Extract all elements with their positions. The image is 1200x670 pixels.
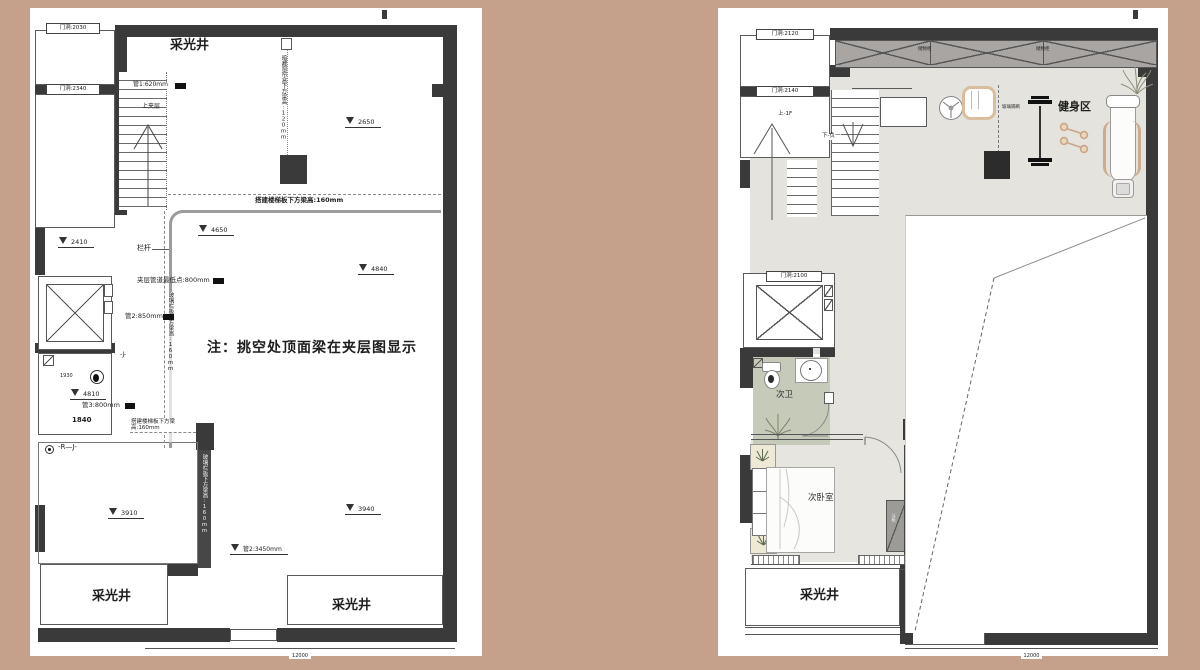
railing-label: 栏杆	[137, 245, 151, 252]
mezzanine-edge-h	[182, 210, 441, 213]
dimension-line: 12000	[145, 648, 455, 668]
toilet-detail	[768, 375, 774, 383]
bedroom-label: 次卧室	[808, 494, 834, 503]
wall	[38, 628, 230, 642]
wall	[443, 25, 457, 639]
cube-seat	[962, 86, 996, 120]
wall	[1146, 28, 1158, 645]
elevation-marker: 4840	[358, 256, 394, 275]
stair-line	[852, 88, 912, 89]
dumbbells-icon	[1058, 120, 1092, 154]
bath-door-arc	[800, 398, 830, 438]
wall	[168, 564, 198, 576]
void-edge-lines	[905, 215, 1146, 633]
pipe-mark	[175, 83, 186, 89]
nightstand-plant	[754, 447, 771, 464]
cabinet-x	[1044, 41, 1156, 65]
elevation-marker: 4650	[198, 217, 234, 236]
leader-line	[152, 249, 169, 250]
dimension-value: 12000	[289, 653, 311, 659]
cabinet-x	[836, 41, 931, 65]
curtain-line	[287, 50, 288, 155]
weight-bench	[984, 151, 1010, 179]
barbell-plate	[1028, 158, 1052, 162]
wall	[740, 348, 753, 388]
elevator-x-symbol	[46, 284, 104, 342]
side-room	[740, 35, 830, 87]
mezzanine-edge-arc	[169, 210, 183, 236]
elevator-x-symbol	[756, 285, 823, 340]
dim-label: 1840	[72, 417, 91, 424]
glass-beam-note: 玻璃栏板下方梁高:160mm	[201, 454, 207, 566]
shaft-detail	[824, 285, 833, 297]
light-well-label: 采光井	[170, 39, 209, 53]
pipe-mark	[213, 278, 224, 284]
wall	[820, 348, 835, 357]
wall-detail	[824, 392, 834, 404]
guide-dashed	[164, 211, 165, 448]
corner-plant	[1120, 64, 1154, 98]
door-tag: 门洞:2100	[766, 271, 822, 282]
corner-hatch	[43, 355, 54, 366]
shaft-detail	[824, 299, 833, 311]
wall-column	[280, 155, 307, 184]
dimension-line: 12000	[905, 648, 1158, 668]
corridor-floor	[830, 215, 905, 445]
elevation-marker: 2650	[345, 109, 381, 128]
pipe-mark	[163, 314, 174, 320]
sink-drain	[809, 368, 811, 370]
mezz-pipe-note: 夹层管道最低点:800mm	[137, 277, 210, 284]
bottom-thin-wall	[745, 627, 900, 635]
pipe-label: 管2:850mm	[125, 313, 163, 320]
door-tag: 门洞:2120	[756, 29, 814, 40]
pipe-mark	[125, 403, 135, 409]
dimension-value: 12000	[1021, 653, 1043, 659]
pipe-label: 管3:800mm	[82, 402, 120, 409]
door-tag: 门洞:2140	[756, 86, 814, 97]
symbol-label: -J-	[120, 352, 126, 358]
dresser-label: 斗柜	[890, 513, 895, 522]
wall	[985, 632, 1158, 645]
glass-partition-line	[998, 85, 999, 153]
wall	[830, 28, 1158, 40]
bath-label: 次卫	[776, 391, 793, 400]
page-background: { "canvas": {"background": "#c5a18c", "p…	[0, 0, 1200, 670]
barbell-plate	[1028, 100, 1052, 104]
stair-direction-label: 下-负一	[822, 134, 841, 140]
pipe-elevation-marker: 管2:3450mm	[230, 536, 288, 555]
side-room	[35, 30, 115, 85]
stair-direction-label: 上夹层	[142, 104, 160, 110]
light-well-label: 采光井	[332, 599, 371, 613]
stair-down-arrow	[840, 120, 866, 150]
curtain-box	[281, 38, 292, 50]
wall	[740, 160, 750, 188]
beam-dashed-line	[168, 194, 441, 195]
barbell-bar	[1039, 106, 1041, 158]
glass-partition-label: 玻璃隔断	[1002, 106, 1020, 111]
sink-basin	[800, 360, 822, 381]
staircase	[831, 90, 879, 216]
pipe-label: 管1:620mm	[133, 82, 168, 88]
bedroom-door-arc	[863, 435, 903, 475]
storage-cabinet-row	[835, 40, 1157, 68]
wall	[35, 228, 45, 275]
dim-label: 1930	[60, 374, 73, 379]
curtain-beam-note: 暗藏窗帘盒下方梁高:120mm	[280, 55, 286, 155]
wall-column	[196, 423, 214, 450]
stair-up-arrow	[750, 108, 794, 223]
mezzanine-floor-plan: 门洞:2120 门洞:2140 储物柜 储物柜 上-1F 下-负一 玻璃隔断 健…	[718, 8, 1168, 656]
elevation-marker: 3910	[108, 500, 144, 519]
elevation-marker: 2410	[58, 229, 94, 248]
light-well-label: 采光井	[800, 589, 839, 603]
wall	[115, 25, 457, 37]
north-tick	[382, 10, 387, 19]
shaft-detail	[104, 301, 113, 314]
side-room	[35, 94, 115, 228]
cabinet-label: 储物柜	[918, 48, 932, 53]
basement-floor-plan: 门洞:2030 门洞:2340 1930 -J- 管3:800mm 1840 -…	[30, 8, 482, 656]
bedroom-top-wall	[751, 434, 863, 440]
fan-icon	[938, 95, 964, 121]
beam-note: 搭建楼梯板下方梁高:160mm	[253, 197, 345, 204]
wall	[745, 348, 813, 357]
light-well-label: 采光井	[92, 590, 131, 604]
cabinet-x	[931, 41, 1044, 65]
shaft-detail	[104, 284, 113, 297]
north-tick	[1133, 10, 1138, 19]
elevation-marker: 4810	[70, 381, 106, 400]
beam-dashed-line	[130, 432, 196, 433]
stair-landing	[880, 97, 927, 127]
stair-direction-label: 上-1F	[778, 112, 792, 118]
barbell-plate	[1031, 163, 1049, 166]
treadmill	[1102, 95, 1142, 200]
wall-column	[432, 84, 443, 97]
cube-detail	[971, 91, 972, 109]
door-tag: 门洞:2030	[46, 23, 100, 34]
window-notch	[230, 629, 277, 641]
beam-note: 搭建楼梯板下方梁高:160mm	[131, 420, 193, 432]
cabinet-label: 储物柜	[1036, 48, 1050, 53]
main-note: 注：挑空处顶面梁在夹层图显示	[207, 341, 417, 356]
stair-up-arrow	[130, 113, 166, 208]
window-notch	[905, 632, 985, 645]
gym-zone-label: 健身区	[1058, 101, 1091, 113]
barbell-plate	[1031, 96, 1049, 99]
elevation-marker: 3940	[345, 496, 381, 515]
door-tag: 门洞:2340	[46, 84, 100, 95]
bed-sheet-fold	[766, 467, 833, 551]
wall	[277, 628, 457, 642]
cube-detail	[978, 91, 979, 109]
